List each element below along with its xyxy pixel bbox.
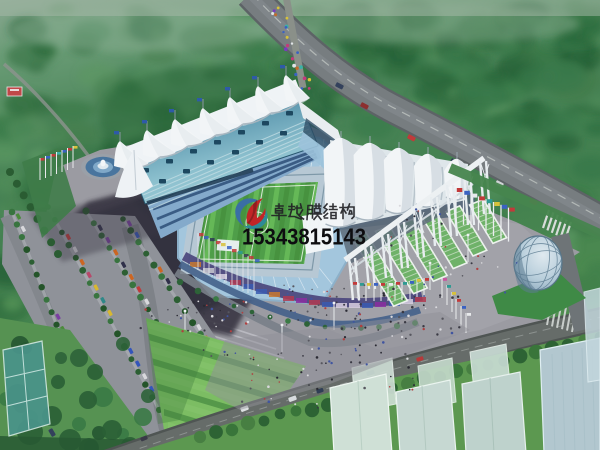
svg-text:15343815143: 15343815143: [242, 224, 366, 250]
